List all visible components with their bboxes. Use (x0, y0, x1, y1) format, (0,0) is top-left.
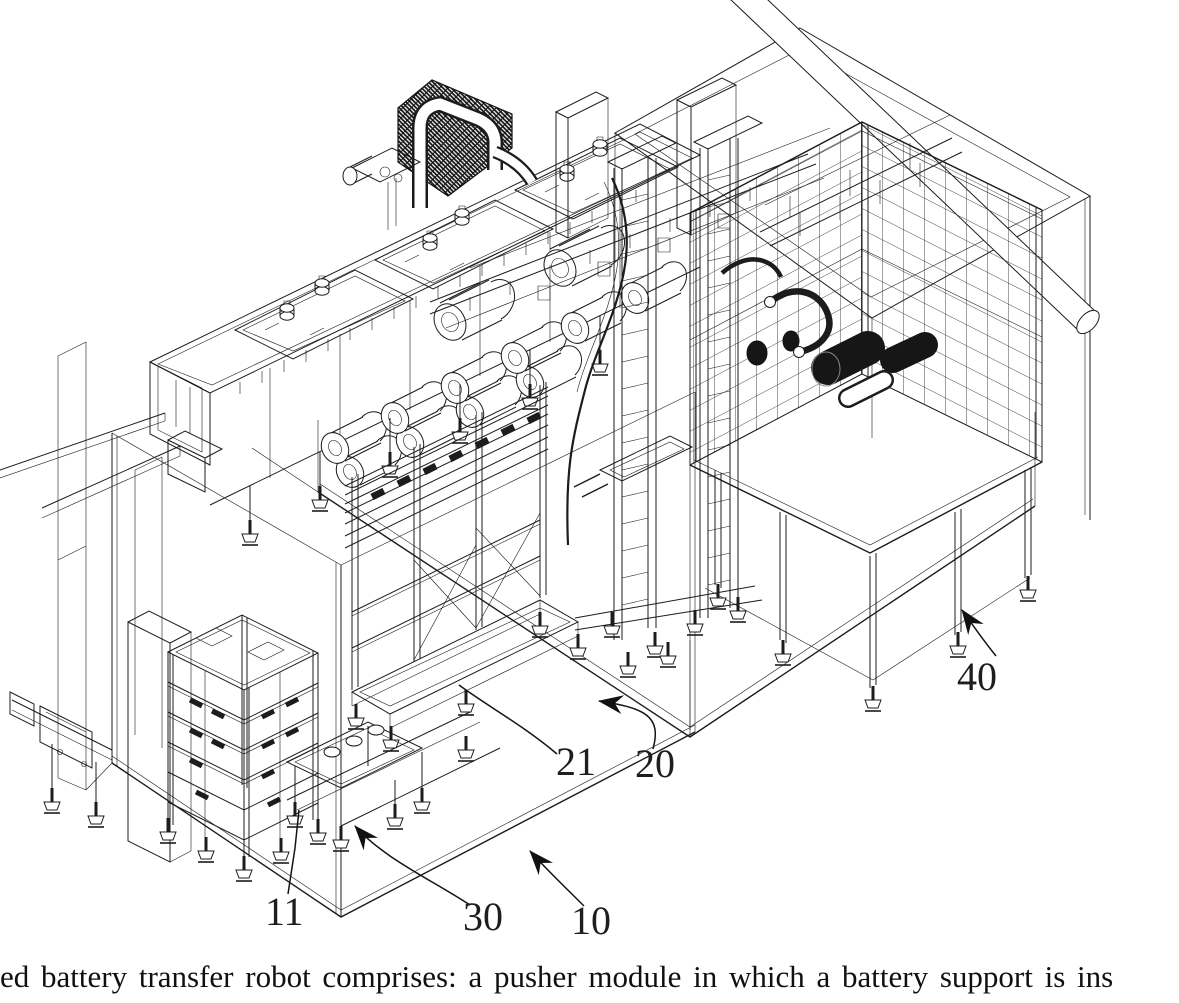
stacked-rack-11 (160, 615, 326, 881)
lower-enclosure-box-10 (58, 342, 695, 917)
ref-label-21: 21 (556, 742, 596, 782)
patent-figure-page: 10 11 20 21 30 40 ed battery transfer ro… (0, 0, 1179, 1003)
ref-label-40: 40 (957, 657, 997, 697)
ref-label-30: 30 (463, 897, 503, 937)
isometric-machinery-drawing (0, 0, 1179, 1003)
left-fixtures (0, 413, 180, 827)
heat-exchanger-unit (343, 80, 532, 230)
figure-caption: ed battery transfer robot comprises: a p… (0, 959, 1179, 995)
ref-label-10: 10 (571, 901, 611, 941)
leader-line-21 (459, 685, 557, 754)
ref-label-20: 20 (635, 744, 675, 784)
leader-arrow-40 (962, 610, 996, 656)
ref-label-11: 11 (265, 892, 304, 932)
leader-arrow-30 (355, 826, 470, 905)
